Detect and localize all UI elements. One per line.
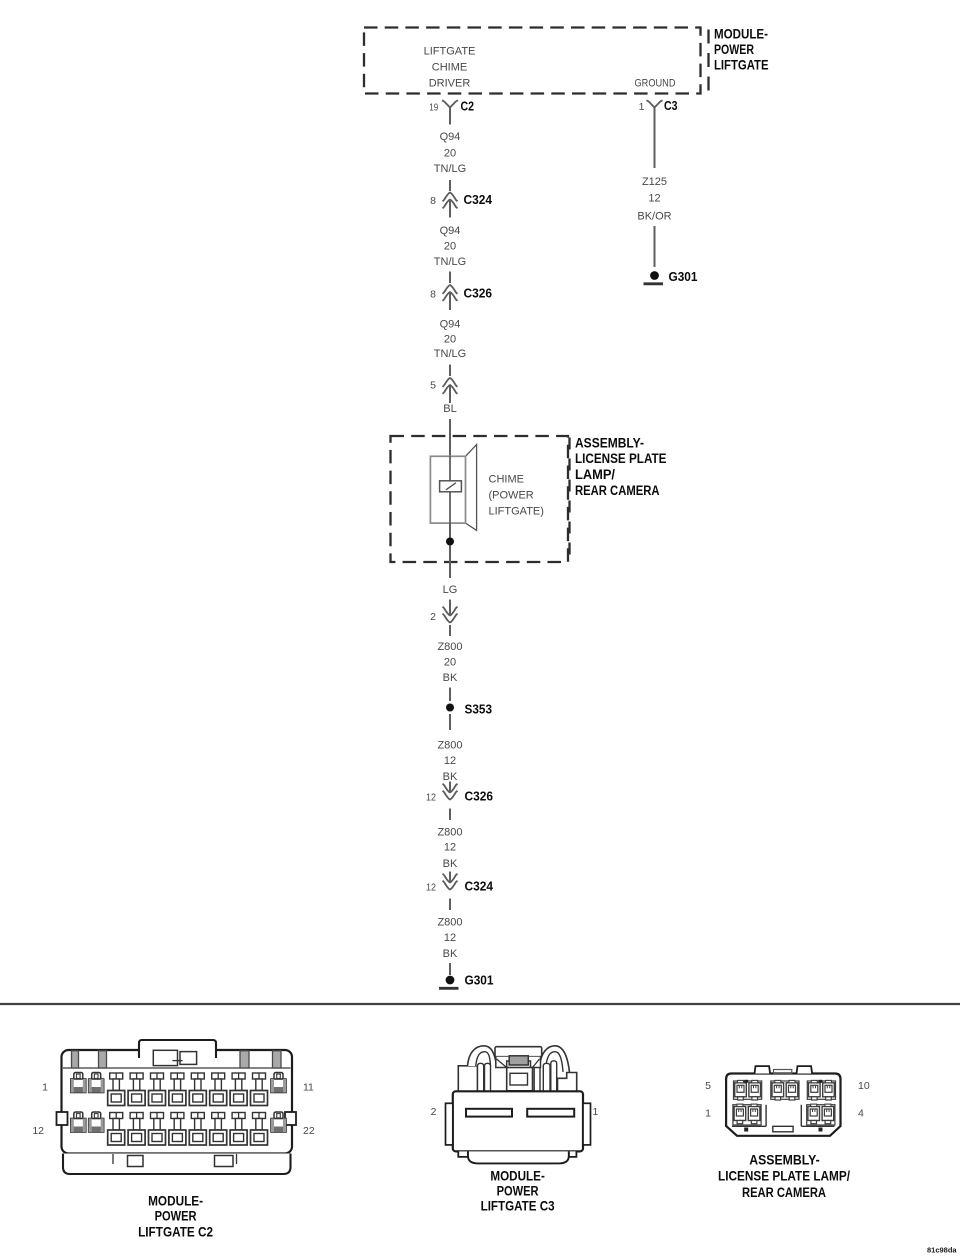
svg-text:Q94: Q94 [440,225,461,237]
svg-text:POWER: POWER [155,1209,197,1224]
svg-text:Z800: Z800 [437,740,462,752]
svg-text:12: 12 [444,755,456,767]
svg-text:TN/LG: TN/LG [434,348,466,360]
svg-text:BK: BK [443,771,458,783]
svg-text:Z800: Z800 [437,641,462,653]
svg-text:Q94: Q94 [440,319,461,331]
svg-text:12: 12 [648,193,660,205]
svg-text:1: 1 [639,101,645,113]
svg-text:G301: G301 [669,269,698,284]
svg-text:8: 8 [430,289,436,301]
svg-text:G301: G301 [465,973,494,988]
svg-text:LIFTGATE: LIFTGATE [714,57,769,72]
svg-text:Q94: Q94 [440,131,461,143]
svg-text:12: 12 [444,842,456,854]
svg-text:19: 19 [429,102,438,114]
svg-text:1: 1 [593,1106,599,1118]
svg-text:C324: C324 [465,879,494,894]
svg-text:C324: C324 [464,192,493,207]
svg-text:LICENSE PLATE LAMP/: LICENSE PLATE LAMP/ [718,1169,850,1184]
svg-text:BL: BL [443,403,456,415]
svg-text:LIFTGATE): LIFTGATE) [489,506,544,518]
svg-text:TN/LG: TN/LG [434,256,466,268]
svg-text:BK: BK [443,948,458,960]
svg-text:BK: BK [443,672,458,684]
svg-text:4: 4 [858,1107,864,1119]
svg-text:REAR CAMERA: REAR CAMERA [742,1185,826,1200]
svg-text:MODULE-: MODULE- [148,1194,203,1209]
svg-text:Z800: Z800 [437,827,462,839]
svg-text:12: 12 [426,882,436,894]
svg-text:2: 2 [431,1106,437,1118]
svg-text:TN/LG: TN/LG [434,163,466,175]
svg-text:POWER: POWER [714,42,754,57]
svg-text:C2: C2 [461,99,475,114]
svg-text:LIFTGATE C2: LIFTGATE C2 [138,1224,213,1239]
svg-text:C326: C326 [465,789,494,804]
svg-text:1: 1 [705,1107,711,1119]
svg-text:8: 8 [430,195,436,207]
svg-text:REAR CAMERA: REAR CAMERA [575,483,660,498]
svg-text:5: 5 [430,380,436,392]
svg-text:LAMP/: LAMP/ [575,467,615,482]
svg-text:Z125: Z125 [642,176,667,188]
svg-text:C3: C3 [664,98,678,113]
svg-text:DRIVER: DRIVER [429,78,471,90]
svg-text:LIFTGATE: LIFTGATE [424,46,476,58]
svg-text:Z800: Z800 [437,917,462,929]
svg-text:10: 10 [858,1080,870,1092]
svg-text:12: 12 [444,932,456,944]
svg-text:11: 11 [303,1082,314,1094]
svg-text:20: 20 [444,657,456,669]
svg-text:81c98da: 81c98da [927,1246,957,1255]
svg-text:LIFTGATE C3: LIFTGATE C3 [481,1199,555,1214]
svg-text:MODULE-: MODULE- [490,1169,545,1184]
svg-text:MODULE-: MODULE- [714,26,768,41]
svg-text:POWER: POWER [497,1184,539,1199]
svg-text:BK: BK [443,858,458,870]
svg-text:20: 20 [444,241,456,253]
svg-text:22: 22 [303,1125,315,1137]
svg-text:BK/OR: BK/OR [637,211,671,223]
svg-text:CHIME: CHIME [432,62,467,74]
svg-text:ASSEMBLY-: ASSEMBLY- [749,1153,820,1168]
svg-text:C326: C326 [464,286,493,301]
svg-text:12: 12 [426,792,436,804]
svg-text:(POWER: (POWER [489,490,534,502]
svg-text:20: 20 [444,148,456,160]
svg-text:12: 12 [32,1125,44,1137]
svg-text:LG: LG [443,584,458,596]
svg-text:LICENSE PLATE: LICENSE PLATE [575,451,667,466]
svg-text:S353: S353 [465,702,493,717]
svg-text:20: 20 [444,334,456,346]
svg-text:CHIME: CHIME [489,474,524,486]
svg-text:GROUND: GROUND [635,78,676,90]
svg-text:1: 1 [42,1082,48,1094]
svg-text:ASSEMBLY-: ASSEMBLY- [575,436,644,451]
svg-text:2: 2 [430,611,436,623]
svg-text:5: 5 [705,1080,711,1092]
